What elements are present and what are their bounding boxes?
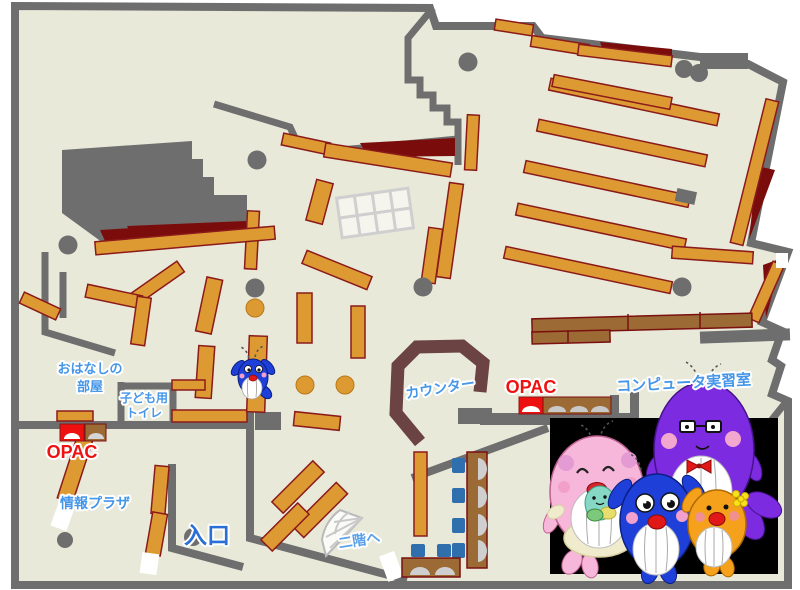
bookshelf	[465, 115, 480, 171]
door-gap	[776, 253, 788, 268]
label-opac-left: OPAC	[47, 442, 98, 462]
bookshelf	[414, 452, 427, 536]
label-kids-toilet-2: トイレ	[126, 406, 162, 420]
bookshelf	[172, 380, 205, 390]
reading-table	[337, 188, 414, 238]
bookshelf	[297, 293, 312, 343]
door-gap	[140, 552, 160, 575]
chair	[452, 458, 465, 473]
pillar	[246, 279, 265, 298]
pillar	[59, 236, 78, 255]
label-opac-center: OPAC	[506, 377, 557, 397]
baby-bib	[587, 509, 603, 521]
pillar	[248, 151, 267, 170]
library-floor-map: おはなしの 部屋 子ども用 トイレ OPAC 情報プラザ 入口 二階へ カウンタ…	[0, 0, 800, 590]
wall-stub	[255, 412, 281, 430]
label-kids-toilet: 子ども用	[120, 391, 168, 405]
floor-map-canvas: おはなしの 部屋 子ども用 トイレ OPAC 情報プラザ 入口 二階へ カウンタ…	[0, 0, 800, 590]
whale-spot	[558, 455, 574, 471]
label-story-room-2: 部屋	[77, 379, 103, 394]
label-info-plaza: 情報プラザ	[60, 495, 130, 511]
chair	[437, 544, 451, 557]
round-shelf	[246, 299, 264, 317]
bookshelf	[351, 306, 365, 358]
pillar	[459, 53, 478, 72]
round-shelf	[296, 376, 314, 394]
pillar	[673, 278, 692, 297]
chair	[452, 518, 465, 533]
pillar	[57, 532, 73, 548]
label-entrance: 入口	[184, 522, 230, 548]
whale-spot	[621, 452, 637, 468]
opac-terminal-center	[519, 397, 611, 414]
chair	[452, 543, 465, 558]
chair	[452, 488, 465, 503]
pillar	[414, 278, 433, 297]
round-shelf	[336, 376, 354, 394]
opac-terminal-left	[60, 424, 106, 441]
wall-bar	[700, 53, 748, 69]
desk	[532, 330, 610, 344]
chair	[411, 544, 425, 557]
bookshelf	[172, 410, 247, 422]
bookshelf	[57, 411, 93, 421]
wall-stub	[630, 392, 639, 418]
label-story-room: おはなしの	[57, 361, 122, 376]
pillar	[690, 64, 708, 82]
